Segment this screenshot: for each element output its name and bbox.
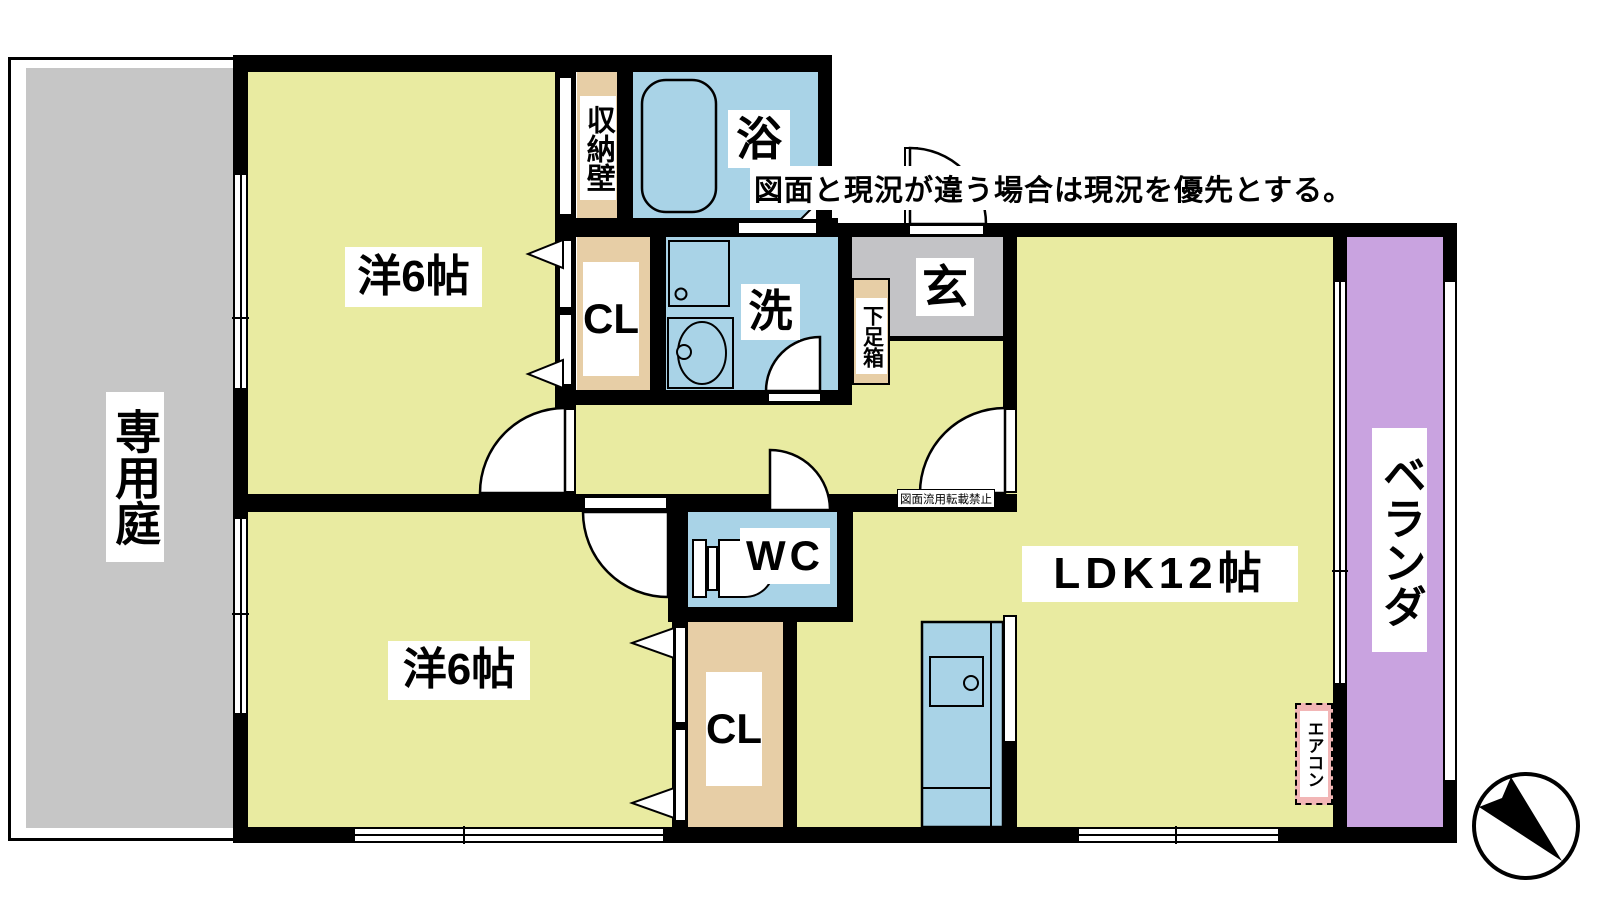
wall-entrance-ldk	[1003, 237, 1017, 408]
kitchen-counter	[1003, 615, 1017, 743]
wall-closet-bottom-right	[783, 622, 797, 827]
window-bedroom-bottom-south	[353, 827, 665, 843]
veranda-rail-bottom	[1443, 782, 1457, 843]
washroom-label: 洗	[741, 284, 800, 340]
window-ldk-veranda	[1333, 280, 1347, 685]
entrance-step-line	[888, 336, 1003, 341]
storage-wall-label: 収納壁	[580, 96, 616, 200]
bedroom-bottom-label: 洋6帖	[388, 641, 530, 700]
closet-bottom-door-upper	[674, 626, 687, 724]
ldk-label: LDK12帖	[1022, 546, 1298, 602]
closet-bottom-door-lower	[674, 728, 687, 822]
aircon-label: エアコン	[1300, 711, 1328, 797]
closet-top-door-upper	[558, 239, 573, 309]
storage-wall-sliding-door	[558, 76, 573, 216]
wall-kitchen-ldk	[1003, 743, 1017, 827]
wc-door-slot	[770, 496, 830, 510]
north-arrow-icon	[1474, 774, 1578, 878]
wall-entrance-left	[838, 237, 852, 405]
washroom-door-slot	[767, 392, 822, 403]
shoe-box-label: 下足箱	[856, 298, 887, 374]
closet-top-label: CL	[583, 262, 639, 376]
closet-top-door-lower	[558, 313, 573, 386]
veranda-railing	[1443, 280, 1457, 782]
wall-wc-right	[837, 494, 853, 622]
floor-plan: 洋6帖 洋6帖 LDK12帖 浴 洗 WC 玄 専用庭 ベランダ 収納壁 CL …	[0, 0, 1600, 900]
wall-closet-washroom	[650, 237, 666, 392]
window-bedroom-top-left	[233, 173, 248, 390]
wall-top-left	[233, 55, 832, 72]
bath-door-slot	[737, 221, 818, 235]
ldk-door-leaf	[1004, 408, 1017, 493]
closet-bottom-label: CL	[706, 672, 762, 786]
wall-ldk-veranda-bottom	[1333, 685, 1347, 827]
wall-ldk-veranda-top	[1333, 237, 1347, 280]
wall-storage-bath	[617, 55, 633, 220]
veranda-label: ベランダ	[1372, 428, 1427, 652]
ldk-floor	[1010, 230, 1340, 835]
wall-wc-left	[668, 494, 688, 622]
wc-label: WC	[740, 528, 830, 584]
bedroom-top-label: 洋6帖	[345, 247, 482, 307]
bedroom-top-door-leaf	[560, 408, 576, 493]
disclaimer-text: 図面と現況が違う場合は現況を優先とする。	[750, 166, 1357, 210]
north-arrow-pointer	[1479, 777, 1562, 861]
watermark-text: 図面流用転載禁止	[897, 489, 995, 508]
veranda-rail-top	[1443, 223, 1457, 280]
entrance-label: 玄	[916, 258, 974, 316]
bedroom-bottom-door-slot	[583, 496, 668, 510]
window-ldk-south	[1077, 827, 1280, 843]
window-bedroom-bottom-left	[233, 517, 248, 715]
bath-label: 浴	[728, 110, 790, 168]
wall-wc-bottom	[668, 607, 853, 622]
garden-label: 専用庭	[106, 392, 164, 562]
entrance-door-slot	[908, 224, 985, 236]
